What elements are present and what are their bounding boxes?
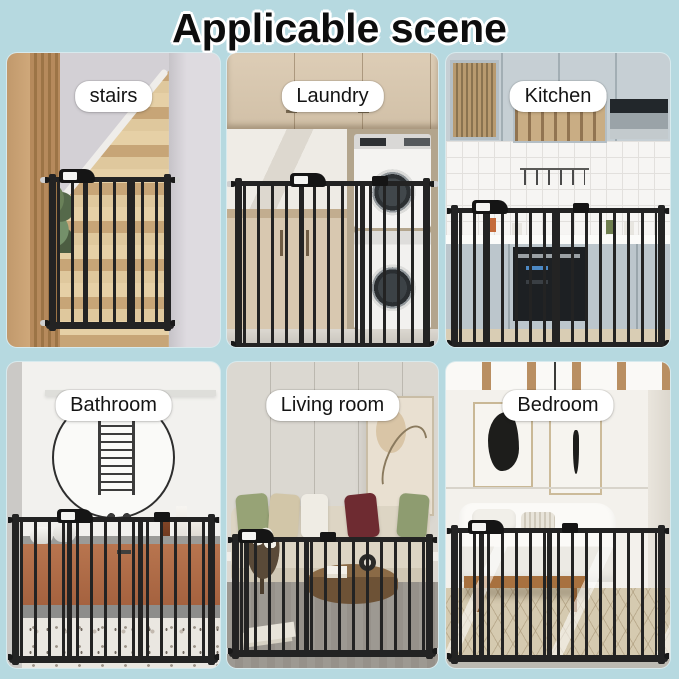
scene-panel-living-room: Living room [227, 362, 438, 668]
gate-latch [59, 169, 95, 183]
gate-left-post [451, 205, 458, 347]
gate-right-post [164, 174, 171, 331]
safety-gate [235, 181, 430, 347]
gate-bottom-rail [9, 656, 218, 663]
sofa-pillow-maroon [344, 492, 380, 539]
scene-panel-bedroom: Bedroom [446, 362, 670, 668]
gate-left-post [232, 534, 239, 659]
gate-door-right-stile [547, 530, 552, 659]
stairs-right-wall [169, 53, 220, 347]
sofa-pillow-sage [396, 492, 430, 539]
gate-bottom-rail [448, 342, 668, 347]
gate-clamp [372, 176, 388, 186]
gate-bars [57, 180, 163, 325]
scene-label: stairs [75, 81, 153, 112]
stairs-wood-door [7, 53, 30, 347]
kitchen-utensil-rail [520, 168, 589, 170]
gate-right-post [658, 205, 665, 347]
scene-panel-stairs: stairs [7, 53, 220, 347]
product-scene-collage: Applicable scene stairs [0, 0, 679, 679]
gate-bars [243, 184, 422, 346]
bedroom-ceiling-beams [446, 362, 670, 390]
gate-right-post [208, 514, 215, 665]
gate-bottom-rail [229, 650, 436, 657]
gate-door-left-stile [483, 210, 488, 346]
gate-right-post [423, 178, 430, 347]
bathroom-towel-rack-reflection [98, 417, 135, 496]
scene-label: Laundry [281, 81, 383, 112]
gate-door-left-stile [83, 179, 88, 326]
gate-latch [290, 173, 326, 187]
scene-label: Bedroom [502, 390, 613, 421]
gate-bars [459, 531, 657, 658]
gate-clamp [154, 512, 170, 522]
scene-label: Bathroom [55, 390, 172, 421]
gate-door-left-stile [479, 530, 484, 659]
gate-bars [240, 540, 425, 653]
safety-gate [232, 537, 433, 657]
gate-top-rail [233, 181, 432, 186]
gate-latch [472, 200, 508, 214]
scene-label: Living room [266, 390, 399, 421]
bedroom-picture-rail [446, 487, 670, 489]
gate-clamp [562, 523, 578, 533]
safety-gate [49, 177, 171, 329]
gate-clamp [573, 203, 589, 213]
gate-bars [20, 520, 207, 659]
gate-latch [238, 529, 274, 543]
scene-panel-bathroom: Bathroom [7, 362, 220, 668]
gate-clamp [320, 532, 336, 542]
gate-door-right-stile [130, 179, 135, 326]
gate-door-left-stile [244, 539, 249, 654]
gate-right-post [426, 534, 433, 659]
gate-latch [468, 520, 504, 534]
gate-door-left-stile [67, 519, 72, 660]
gate-door-right-stile [138, 519, 143, 660]
safety-gate [12, 517, 215, 663]
gate-door-right-stile [360, 183, 365, 347]
bedroom-art-right [549, 414, 602, 495]
gate-door-left-stile [299, 183, 304, 347]
gate-left-post [49, 174, 56, 331]
kitchen-range-hood [610, 99, 668, 140]
scene-label: Kitchen [510, 81, 607, 112]
safety-gate [451, 208, 665, 347]
gate-right-post [658, 525, 665, 664]
gate-door-right-stile [552, 210, 557, 346]
gate-bars [459, 211, 657, 345]
gate-top-rail [10, 517, 217, 522]
page-title: Applicable scene [0, 0, 679, 53]
scene-panel-laundry: Laundry [227, 53, 438, 347]
gate-left-post [235, 178, 242, 347]
gate-latch [57, 509, 93, 523]
gate-left-post [12, 514, 19, 665]
scene-panel-kitchen: Kitchen [446, 53, 670, 347]
kitchen-glass-cabinet [450, 60, 499, 140]
gate-left-post [451, 525, 458, 664]
safety-gate [451, 528, 665, 662]
gate-bottom-rail [46, 322, 174, 329]
gate-door-right-stile [304, 539, 309, 654]
gate-bottom-rail [232, 343, 433, 347]
